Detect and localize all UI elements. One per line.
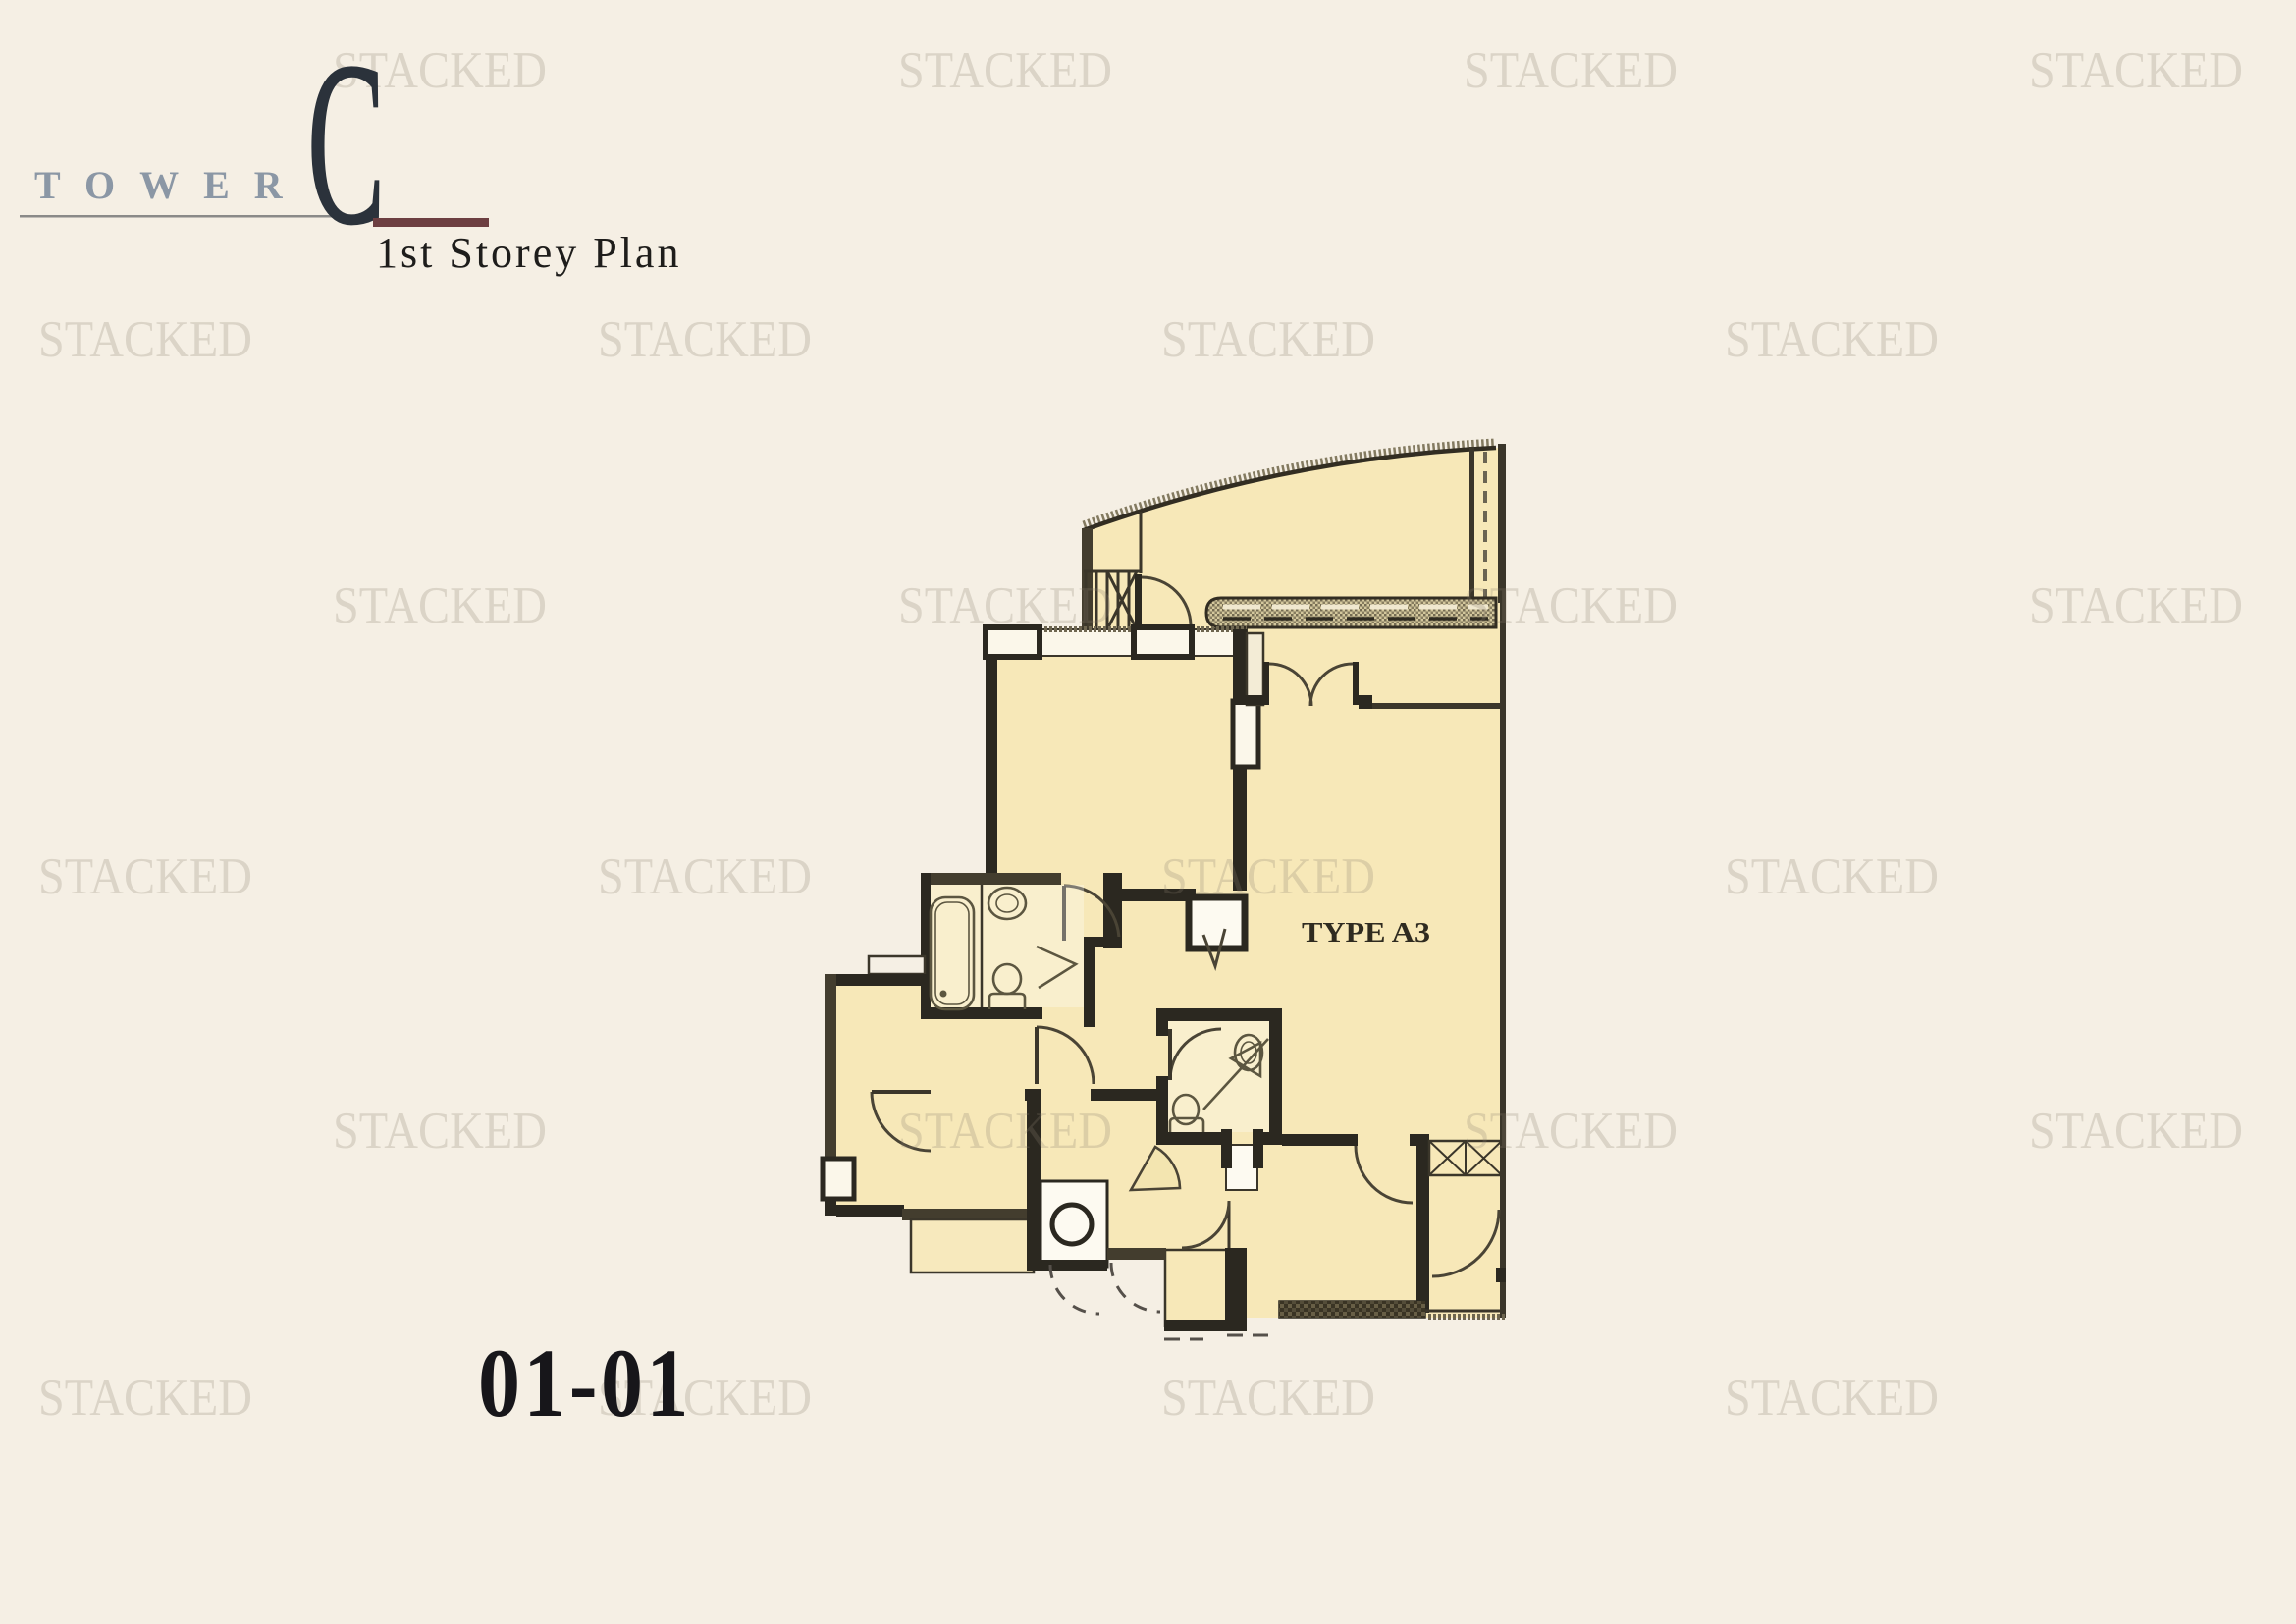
- svg-text:01-01: 01-01: [478, 1329, 692, 1437]
- svg-text:STACKED: STACKED: [898, 42, 1112, 99]
- svg-text:STACKED: STACKED: [333, 1103, 547, 1160]
- svg-text:STACKED: STACKED: [898, 577, 1112, 634]
- svg-text:TOWER: TOWER: [34, 163, 307, 207]
- svg-text:STACKED: STACKED: [1161, 848, 1375, 905]
- svg-text:STACKED: STACKED: [1725, 1370, 1939, 1427]
- svg-text:STACKED: STACKED: [333, 577, 547, 634]
- svg-text:STACKED: STACKED: [38, 311, 252, 368]
- svg-text:1st Storey Plan: 1st Storey Plan: [376, 229, 681, 277]
- svg-text:STACKED: STACKED: [1725, 311, 1939, 368]
- svg-text:C: C: [307, 13, 385, 272]
- svg-text:STACKED: STACKED: [1161, 1370, 1375, 1427]
- svg-text:STACKED: STACKED: [38, 1370, 252, 1427]
- svg-text:STACKED: STACKED: [2029, 42, 2243, 99]
- svg-text:STACKED: STACKED: [598, 848, 812, 905]
- svg-text:STACKED: STACKED: [1464, 577, 1678, 634]
- svg-text:STACKED: STACKED: [38, 848, 252, 905]
- svg-text:STACKED: STACKED: [598, 311, 812, 368]
- svg-text:STACKED: STACKED: [1464, 42, 1678, 99]
- svg-text:STACKED: STACKED: [1161, 311, 1375, 368]
- svg-text:STACKED: STACKED: [1464, 1103, 1678, 1160]
- svg-text:STACKED: STACKED: [1725, 848, 1939, 905]
- svg-text:STACKED: STACKED: [2029, 1103, 2243, 1160]
- svg-text:STACKED: STACKED: [898, 1103, 1112, 1160]
- svg-text:STACKED: STACKED: [2029, 577, 2243, 634]
- svg-text:TYPE A3: TYPE A3: [1302, 917, 1430, 948]
